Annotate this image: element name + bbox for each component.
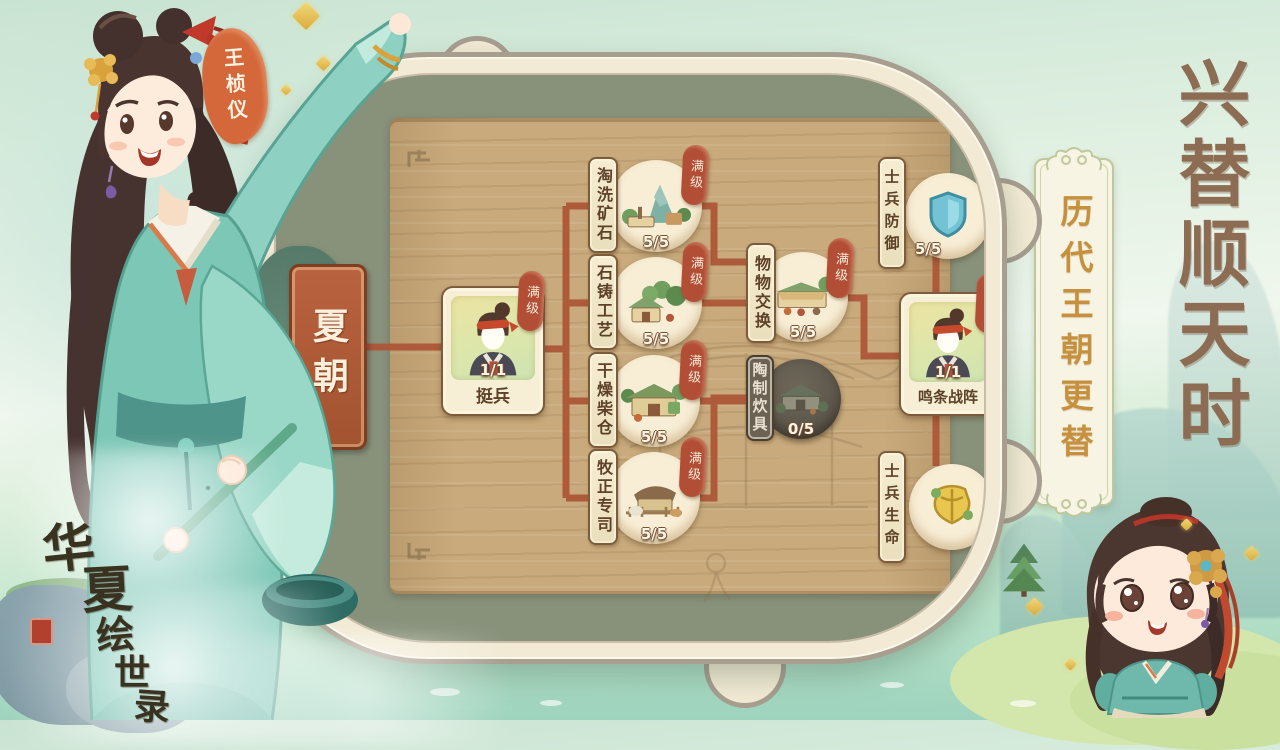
max-level-badge: 满级 bbox=[678, 339, 707, 400]
max-level-badge: 满级 bbox=[516, 270, 545, 331]
node-level: 5/5 bbox=[608, 525, 700, 543]
armor-icon bbox=[927, 481, 977, 529]
logo-seal-stamp bbox=[30, 618, 53, 645]
node-label: 士兵生命 bbox=[882, 463, 903, 551]
character-name: 王桢仪 bbox=[218, 46, 252, 126]
pottery-kitchen-building-icon bbox=[770, 374, 832, 420]
chibi-character bbox=[1048, 492, 1258, 720]
node-label: 淘洗矿石 bbox=[591, 167, 615, 243]
node-level: 1/1 bbox=[451, 361, 535, 379]
max-level-badge: 满级 bbox=[825, 237, 854, 298]
cloud-ornament-icon bbox=[1042, 146, 1106, 172]
node-label: 鸣条战阵 bbox=[901, 386, 986, 407]
water-sparkle bbox=[1010, 700, 1036, 707]
max-level-badge: 满级 bbox=[680, 241, 709, 302]
node-soldier-def[interactable]: 5/5 bbox=[905, 173, 986, 259]
water-sparkle bbox=[880, 682, 904, 688]
node-label: 干燥柴仓 bbox=[591, 362, 615, 438]
node-level: 1/1 bbox=[909, 363, 986, 381]
node-plaque-wood[interactable]: 干燥柴仓 bbox=[588, 352, 618, 448]
pine-tree bbox=[996, 540, 1052, 602]
max-level-badge: 满级 bbox=[678, 436, 707, 497]
node-plaque-soldier-hp[interactable]: 士兵生命 bbox=[878, 451, 906, 563]
node-card-mingtiao[interactable]: 1/1 鸣条战阵 bbox=[899, 292, 986, 416]
node-label: 挺兵 bbox=[443, 382, 543, 407]
node-label: 牧正专司 bbox=[591, 459, 615, 535]
node-plaque-barter[interactable]: 物物交换 bbox=[746, 243, 776, 343]
max-level-badge: 满级 bbox=[680, 144, 709, 205]
game-logo-char: 录 bbox=[132, 677, 172, 731]
event-subtitle: 历代王朝更替 bbox=[1050, 194, 1098, 470]
shield-icon bbox=[925, 189, 971, 239]
node-plaque-soldier-def[interactable]: 士兵防御 bbox=[878, 157, 906, 269]
node-soldier-hp[interactable] bbox=[909, 464, 986, 550]
node-label: 物物交换 bbox=[749, 255, 773, 331]
event-subtitle-scroll: 历代王朝更替 bbox=[1034, 158, 1114, 506]
node-plaque-herd[interactable]: 牧正专司 bbox=[588, 449, 618, 545]
node-label: 士兵防御 bbox=[882, 169, 903, 257]
mist bbox=[150, 636, 570, 746]
node-plaque-pottery[interactable]: 陶制炊具 bbox=[746, 355, 774, 441]
event-headline: 兴替顺天时 bbox=[1126, 56, 1244, 456]
node-label: 石铸工艺 bbox=[591, 264, 615, 340]
node-label: 陶制炊具 bbox=[750, 362, 771, 434]
node-plaque-mine[interactable]: 淘洗矿石 bbox=[588, 157, 618, 253]
node-plaque-stone[interactable]: 石铸工艺 bbox=[588, 254, 618, 350]
node-level: 5/5 bbox=[905, 240, 986, 258]
